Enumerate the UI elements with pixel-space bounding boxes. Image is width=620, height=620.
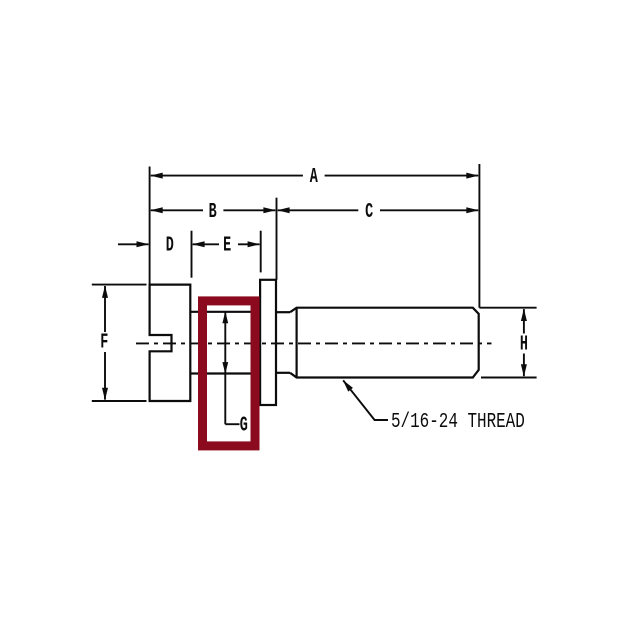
svg-text:G: G xyxy=(240,414,248,438)
svg-text:5/16-24 THREAD: 5/16-24 THREAD xyxy=(391,411,525,434)
svg-text:E: E xyxy=(223,234,231,258)
svg-text:F: F xyxy=(100,331,108,355)
svg-text:B: B xyxy=(209,200,217,224)
svg-text:D: D xyxy=(166,234,174,258)
svg-text:A: A xyxy=(310,165,318,189)
svg-text:H: H xyxy=(520,333,528,357)
svg-text:C: C xyxy=(365,200,373,224)
